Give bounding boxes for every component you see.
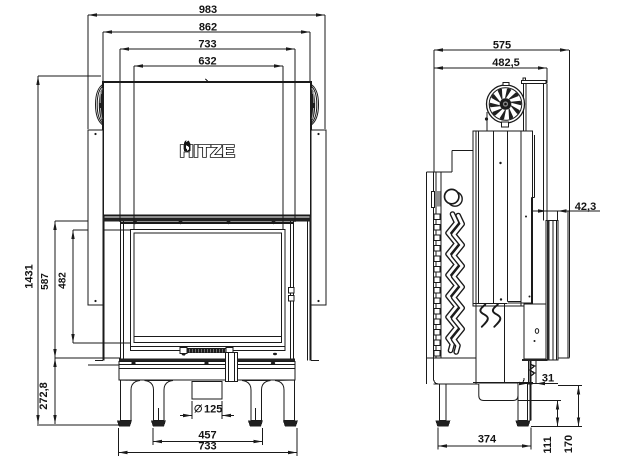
svg-text:482,5: 482,5	[492, 57, 520, 69]
svg-text:733: 733	[198, 39, 216, 51]
svg-text:42,3: 42,3	[575, 201, 596, 213]
svg-text:111: 111	[542, 436, 554, 453]
svg-text:587: 587	[40, 273, 51, 290]
svg-text:983: 983	[199, 4, 217, 16]
svg-text:31: 31	[542, 373, 554, 385]
svg-text:272,8: 272,8	[38, 382, 50, 410]
svg-text:125: 125	[204, 404, 222, 416]
svg-text:170: 170	[563, 435, 575, 453]
svg-text:862: 862	[199, 22, 217, 34]
svg-text:575: 575	[493, 39, 511, 51]
svg-text:374: 374	[478, 434, 497, 446]
svg-text:1431: 1431	[24, 264, 36, 288]
svg-text:632: 632	[198, 56, 216, 68]
svg-text:733: 733	[198, 441, 216, 453]
svg-text:482: 482	[58, 272, 69, 289]
